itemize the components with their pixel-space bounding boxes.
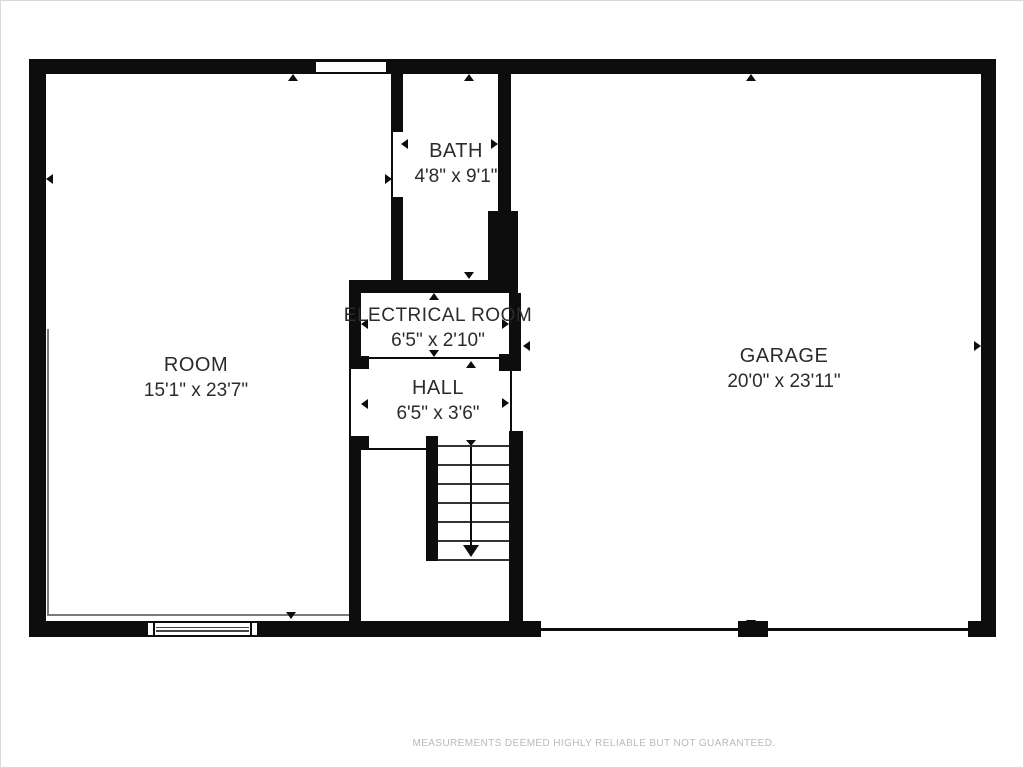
electrical-room-name: ELECTRICAL ROOM [344,303,532,328]
wall-left [29,59,46,637]
hall-label: HALL 6'5" x 3'6" [396,376,479,426]
electrical-jamb-east [499,354,521,371]
hall-east-door-line [510,371,512,431]
hall-name: HALL [396,376,479,401]
garage-name: GARAGE [727,344,840,369]
top-opening-outer-line [316,59,386,62]
stair-down-arrow-icon [463,545,479,557]
measurement-disclaimer: MEASUREMENTS DEEMED HIGHLY RELIABLE BUT … [413,738,776,749]
wall-top-left [29,59,316,74]
garage-south-arrow-icon [746,620,756,627]
bath-name: BATH [414,139,497,164]
wall-bottom-mid [259,621,541,637]
wall-right [981,59,996,637]
window-jamb-left [153,623,155,635]
room-interior-line-horizontal [47,614,349,616]
bath-dimensions: 4'8" x 9'1" [414,164,497,189]
stair-tread [438,483,509,485]
bath-wall-left-lower [391,197,403,285]
hall-west-door-line [349,369,351,436]
window [146,621,259,637]
electrical-room-label: ELECTRICAL ROOM 6'5" x 2'10" [344,303,532,353]
bath-south-arrow-icon [464,272,474,279]
garage-door-opening-line [768,628,968,631]
room-dimensions: 15'1" x 23'7" [144,378,248,403]
window-jamb-right [250,623,252,635]
electrical-north-arrow-icon [429,293,439,300]
garage-dimensions: 20'0" x 23'11" [727,369,840,394]
room-name: ROOM [144,353,248,378]
bath-wall-left-upper [391,74,403,132]
garage-door-opening-line [541,628,738,631]
garage-north-arrow-icon [746,74,756,81]
hall-dimensions: 6'5" x 3'6" [396,401,479,426]
stair-tread [438,464,509,466]
garage-east-arrow-icon [974,341,981,351]
hall-wall-west-lower [349,436,361,621]
hall-west-arrow-icon [361,399,368,409]
stair-tread [438,559,509,561]
window-pane-line [156,627,249,629]
electrical-room-dimensions: 6'5" x 2'10" [344,328,532,353]
hall-east-arrow-icon [502,398,509,408]
stair-tread [438,502,509,504]
room-east-arrow-icon [385,174,392,184]
bath-north-arrow-icon [464,74,474,81]
hall-wall-east-lower [509,431,523,621]
top-opening-inner-line [316,72,386,75]
bath-label: BATH 4'8" x 9'1" [414,139,497,189]
garage-label: GARAGE 20'0" x 23'11" [727,344,840,394]
electrical-jamb-west [349,356,369,369]
floor-plan: ROOM 15'1" x 23'7" BATH 4'8" x 9'1" ELEC… [0,0,1024,768]
room-south-arrow-icon [286,612,296,619]
wall-top-right [386,59,996,74]
wall-bottom-right-corner [968,621,996,637]
stair-wall [426,436,438,561]
bath-wall-right [498,74,511,214]
room-west-arrow-icon [46,174,53,184]
wall-bottom-left [29,621,146,637]
room-north-arrow-icon [288,74,298,81]
hall-stair-boundary-line [361,448,426,450]
stair-direction-line [470,447,472,547]
room-label: ROOM 15'1" x 23'7" [144,353,248,403]
window-pane-line [156,630,249,632]
electrical-wall-top [349,280,518,293]
bath-door-line [391,132,393,197]
bath-west-arrow-icon [401,139,408,149]
stair-tread [438,540,509,542]
stair-direction-start-icon [466,440,476,446]
stair-tread [438,521,509,523]
hall-north-arrow-icon [466,361,476,368]
room-interior-line-vertical [47,329,49,616]
electrical-opening-line [369,357,499,359]
